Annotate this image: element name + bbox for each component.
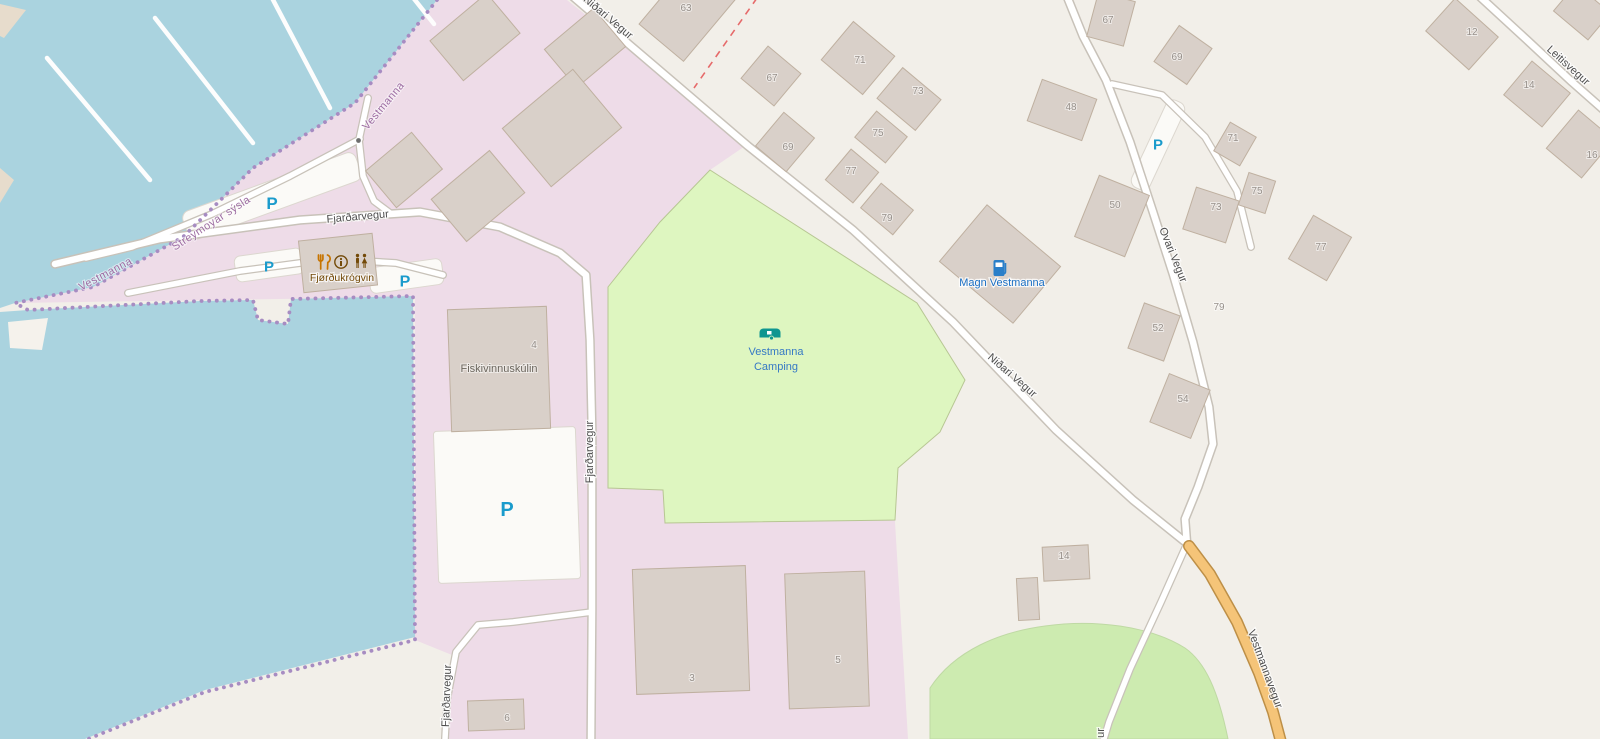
- gate-icon: [356, 138, 361, 143]
- building: [861, 183, 914, 235]
- building: [467, 699, 524, 731]
- camping-label-line2: Camping: [754, 361, 798, 373]
- building: [1426, 0, 1499, 70]
- camping-label-line1: Vestmanna: [748, 346, 804, 358]
- fuel-icon: [994, 260, 1006, 276]
- parking-icon: P: [264, 258, 274, 275]
- road-label: Fjarðarvegur: [584, 420, 596, 483]
- parking-icon: P: [1153, 136, 1163, 153]
- building: [1546, 110, 1600, 178]
- house-number: 69: [1171, 52, 1183, 63]
- house-number: 79: [881, 213, 893, 224]
- map-canvas[interactable]: Fjørðukrógvin Magn Vestmanna Vestmanna C…: [0, 0, 1600, 739]
- house-number: 6: [504, 713, 510, 724]
- house-number: 77: [845, 166, 857, 177]
- house-number: 75: [1251, 186, 1263, 197]
- fiskivinnuskulin-label: Fiskivinnuskúlin: [460, 363, 537, 375]
- parking-icon: P: [266, 194, 277, 213]
- house-number: 73: [912, 86, 924, 97]
- house-number: 69: [782, 142, 794, 153]
- house-number: 50: [1109, 200, 1121, 211]
- house-number: 3: [689, 673, 695, 684]
- house-number: 12: [1466, 27, 1478, 38]
- house-number: 73: [1210, 202, 1222, 213]
- parking-icon: P: [400, 274, 411, 291]
- house-number: 75: [872, 128, 884, 139]
- building: [785, 571, 870, 709]
- house-number: 67: [1102, 15, 1114, 26]
- house-number: 52: [1152, 323, 1164, 334]
- house-number: 5: [835, 655, 841, 666]
- quay-tip: [8, 318, 48, 350]
- building: [1554, 0, 1600, 40]
- house-number: 4: [531, 340, 537, 351]
- house-number: 63: [680, 3, 692, 14]
- road-label: Fjarðarvegur: [440, 664, 454, 727]
- building: [1027, 79, 1097, 140]
- house-number: 67: [766, 73, 778, 84]
- house-number: 48: [1065, 102, 1077, 113]
- house-number: 71: [854, 55, 866, 66]
- road-label: ur: [1095, 728, 1107, 738]
- house-number: 14: [1058, 551, 1070, 562]
- building: [1183, 187, 1239, 243]
- grass-area: [930, 623, 1228, 739]
- building: [1154, 26, 1212, 85]
- house-number: 71: [1227, 133, 1239, 144]
- house-number: 14: [1523, 80, 1535, 91]
- fjordukrogvin-label: Fjørðukrógvin: [310, 272, 374, 284]
- building: [1016, 577, 1039, 620]
- parking-icon: P: [500, 499, 513, 521]
- house-number: 16: [1586, 150, 1598, 161]
- house-number: 77: [1315, 242, 1327, 253]
- magn-vestmanna-label: Magn Vestmanna: [959, 277, 1045, 289]
- house-number: 79: [1213, 302, 1225, 313]
- road-label: Niðari Vegur: [985, 351, 1039, 400]
- house-number: 54: [1177, 394, 1189, 405]
